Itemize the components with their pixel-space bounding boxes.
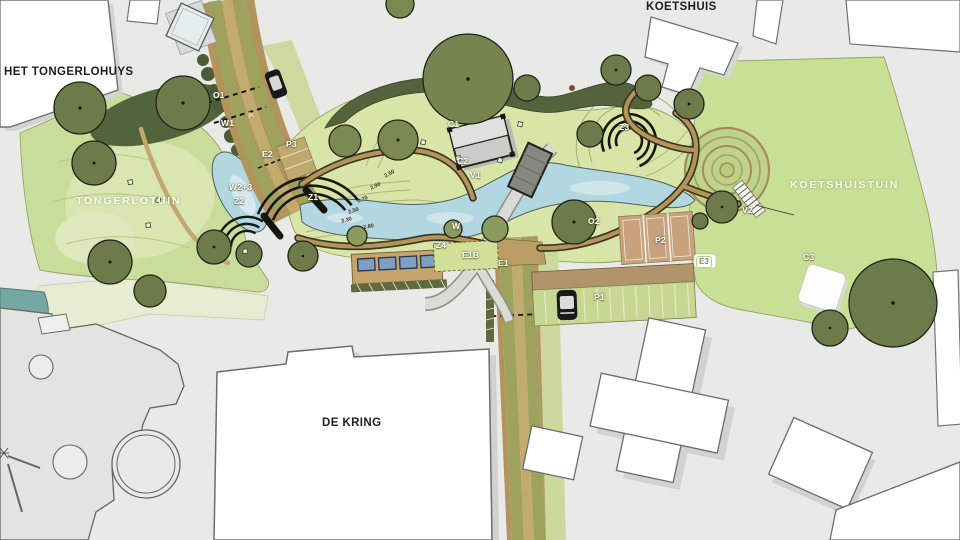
tree — [329, 125, 361, 157]
east-building — [933, 270, 960, 426]
p1-parking — [532, 264, 697, 326]
dekring-building — [214, 346, 492, 540]
northeast-building — [846, 0, 960, 52]
z4-deck — [349, 249, 447, 292]
e3-badge-backing — [694, 254, 716, 268]
site-plan: HET TONGERLOHUYSKOETSHUISDE KRINGTONGERL… — [0, 0, 960, 540]
p2-courts — [618, 211, 695, 264]
tongerlohuys-annex — [127, 0, 160, 24]
hedge-bench — [569, 85, 575, 91]
tree — [236, 241, 262, 267]
tree — [635, 75, 661, 101]
e1-entrance-plaza — [492, 238, 546, 266]
tree — [444, 220, 462, 238]
site-plan-drawing — [0, 0, 960, 540]
car-in-parking — [556, 290, 577, 321]
tree — [514, 75, 540, 101]
tree — [347, 226, 367, 246]
e1b-panel — [433, 240, 498, 271]
tree — [482, 216, 508, 242]
tree — [692, 213, 708, 229]
tree — [134, 275, 166, 307]
tree — [577, 121, 603, 147]
